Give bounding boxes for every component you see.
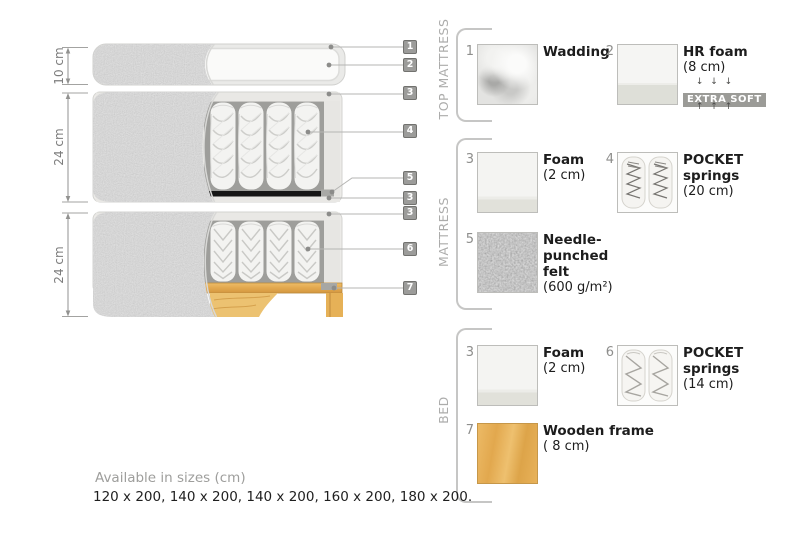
group-title-mattress: MATTRESS [436, 167, 452, 297]
available-sizes-heading: Available in sizes (cm) [95, 470, 246, 486]
legend-detail-hr-foam: (8 cm) [683, 60, 725, 76]
bed-section [93, 212, 343, 317]
legend-label-pocket-14-line2: springs [683, 361, 739, 377]
legend-label-foam-mattress: Foam [543, 152, 584, 168]
pocket-springs-14-swatch [617, 345, 678, 406]
legend-detail-foam-bed: (2 cm) [543, 361, 585, 377]
dimension-label-bed: 24 cm [52, 240, 66, 290]
callout-tag-1: 1 [403, 40, 417, 54]
legend-label-hr-foam: HR foam [683, 44, 748, 60]
legend-label-felt-line2: punched [543, 248, 608, 264]
legend-label-pocket-20-line2: springs [683, 168, 739, 184]
legend-detail-foam-mattress: (2 cm) [543, 168, 585, 184]
group-title-top-mattress: TOP MATTRESS [436, 4, 452, 134]
legend-detail-wooden-frame: ( 8 cm) [543, 439, 590, 455]
top-mattress-section [93, 44, 345, 85]
felt-swatch [477, 232, 538, 293]
legend-label-felt-line3: felt [543, 264, 569, 280]
pocket-springs-14-drawing [618, 346, 677, 405]
legend-label-felt-line1: Needle- [543, 232, 602, 248]
callout-tag-3c: 3 [403, 206, 417, 220]
foam-swatch-mattress [477, 152, 538, 213]
legend-detail-felt: (600 g/m²) [543, 280, 613, 296]
legend-num-felt: 5 [462, 232, 474, 247]
legend-num-pocket-20: 4 [602, 152, 614, 167]
legend-label-foam-bed: Foam [543, 345, 584, 361]
wadding-swatch [477, 44, 538, 105]
wooden-frame-swatch [477, 423, 538, 484]
legend-num-wadding: 1 [462, 44, 474, 59]
callout-tag-6: 6 [403, 242, 417, 256]
callout-tag-2: 2 [403, 58, 417, 72]
group-title-bed: BED [436, 345, 452, 475]
legend-num-foam-bed: 3 [462, 345, 474, 360]
wooden-frame [204, 283, 343, 317]
felt-texture [478, 233, 537, 292]
arrows-up-icon: ↑ ↑ ↑ [683, 102, 747, 112]
mattress-section [93, 92, 342, 202]
legend-num-wooden-frame: 7 [462, 423, 474, 438]
legend-num-pocket-14: 6 [602, 345, 614, 360]
legend-detail-pocket-14: (14 cm) [683, 377, 734, 393]
felt-layer-bar [208, 191, 325, 197]
foam-swatch-bed [477, 345, 538, 406]
legend-detail-pocket-20: (20 cm) [683, 184, 734, 200]
callout-tag-3b: 3 [403, 191, 417, 205]
mattress-construction-infographic: 10 cm 24 cm 24 cm 1 2 3 4 5 3 3 6 7 TOP … [0, 0, 800, 533]
hr-foam-swatch [617, 44, 678, 105]
available-sizes-list: 120 x 200, 140 x 200, 140 x 200, 160 x 2… [93, 489, 472, 505]
pocket-springs-20-drawing [618, 153, 677, 212]
dimension-label-top-mattress: 10 cm [52, 41, 66, 91]
legend-label-wooden-frame: Wooden frame [543, 423, 654, 439]
callout-tag-4: 4 [403, 124, 417, 138]
legend-label-pocket-14-line1: POCKET [683, 345, 743, 361]
legend-num-hr-foam: 2 [602, 44, 614, 59]
arrows-down-icon: ↓ ↓ ↓ [683, 77, 747, 87]
legend-label-pocket-20-line1: POCKET [683, 152, 743, 168]
dimension-label-mattress: 24 cm [52, 122, 66, 172]
callout-tag-7: 7 [403, 281, 417, 295]
legend-label-wadding: Wadding [543, 44, 610, 60]
legend-num-foam-mattress: 3 [462, 152, 474, 167]
pocket-springs-20-swatch [617, 152, 678, 213]
callout-tag-3: 3 [403, 86, 417, 100]
callout-tag-5: 5 [403, 171, 417, 185]
